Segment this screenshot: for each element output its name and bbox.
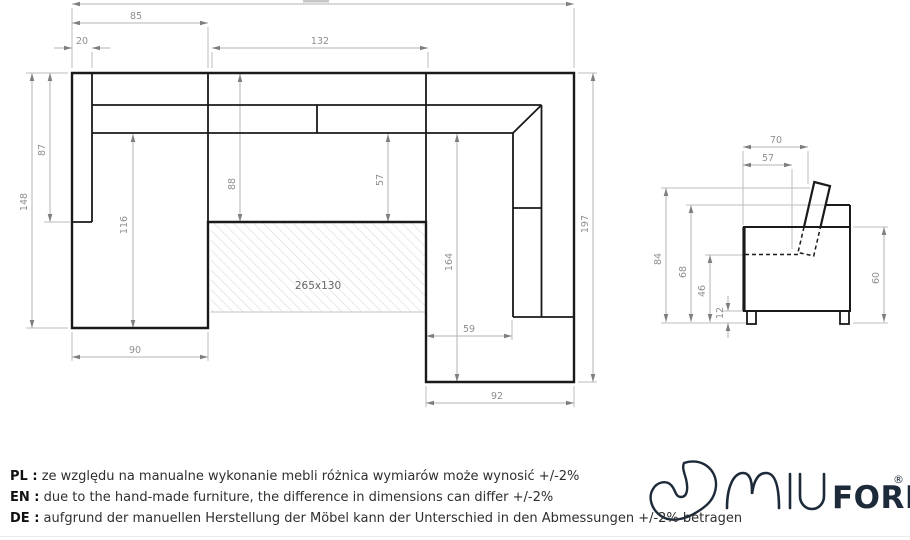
dim-label-20: 20 — [76, 36, 88, 47]
dim-label-57-side: 57 — [762, 153, 774, 164]
tolerance-notes: PL : ze względu na manualne wykonanie me… — [10, 467, 742, 529]
note-en-label: EN : — [10, 490, 40, 505]
top-view-dimension-lines — [32, 0, 593, 403]
dim-label-12: 12 — [715, 307, 726, 319]
dim-label-148: 148 — [19, 193, 30, 211]
bed-area-label: 265x130 — [295, 280, 341, 292]
dim-label-85: 85 — [130, 11, 142, 22]
dim-label-60: 60 — [871, 272, 882, 284]
dim-label-164: 164 — [444, 253, 455, 271]
dim-label-92: 92 — [491, 391, 503, 402]
note-de-label: DE : — [10, 511, 39, 526]
logo-letter-u — [800, 474, 824, 509]
dim-label-68: 68 — [678, 266, 689, 278]
note-de-text: aufgrund der manuellen Herstellung der M… — [44, 511, 743, 526]
note-en: EN : due to the hand-made furniture, the… — [10, 488, 742, 509]
dim-label-84: 84 — [653, 253, 664, 265]
top-view-dimension-labels: 85 20 132 148 87 116 88 57 164 59 90 92 … — [19, 11, 591, 402]
sofa-side-profile — [744, 182, 850, 324]
note-pl-text: ze względu na manualne wykonanie mebli r… — [42, 469, 580, 484]
note-de: DE : aufgrund der manuellen Herstellung … — [10, 509, 742, 530]
furniture-dimension-sheet: 265x130 — [0, 0, 910, 540]
dim-label-59: 59 — [463, 324, 475, 335]
side-view: 70 57 84 68 46 12 60 — [653, 135, 888, 338]
tilted-headrest-hidden — [798, 227, 821, 256]
front-leg — [747, 311, 756, 324]
dim-label-57-top: 57 — [375, 174, 386, 186]
dim-label-132: 132 — [311, 36, 329, 47]
technical-drawing: 265x130 — [0, 0, 910, 540]
dim-overall-width-cutoff-text — [303, 0, 329, 3]
dim-label-46: 46 — [697, 285, 708, 297]
dim-label-197: 197 — [580, 215, 591, 233]
note-pl-label: PL : — [10, 469, 38, 484]
note-pl: PL : ze względu na manualne wykonanie me… — [10, 467, 742, 488]
note-en-text: due to the hand-made furniture, the diff… — [44, 490, 554, 505]
dim-label-70: 70 — [770, 135, 782, 146]
top-view: 265x130 — [19, 0, 597, 407]
dim-label-88: 88 — [227, 178, 238, 190]
dim-label-116: 116 — [119, 216, 130, 234]
back-leg — [840, 311, 849, 324]
dim-label-90: 90 — [129, 345, 141, 356]
bed-area-hatch — [211, 223, 427, 312]
side-view-extension-lines — [661, 151, 888, 323]
top-view-extension-lines — [26, 8, 597, 407]
side-view-dimension-lines — [666, 147, 884, 338]
dim-label-87: 87 — [37, 144, 48, 156]
registered-mark: ® — [893, 473, 904, 486]
